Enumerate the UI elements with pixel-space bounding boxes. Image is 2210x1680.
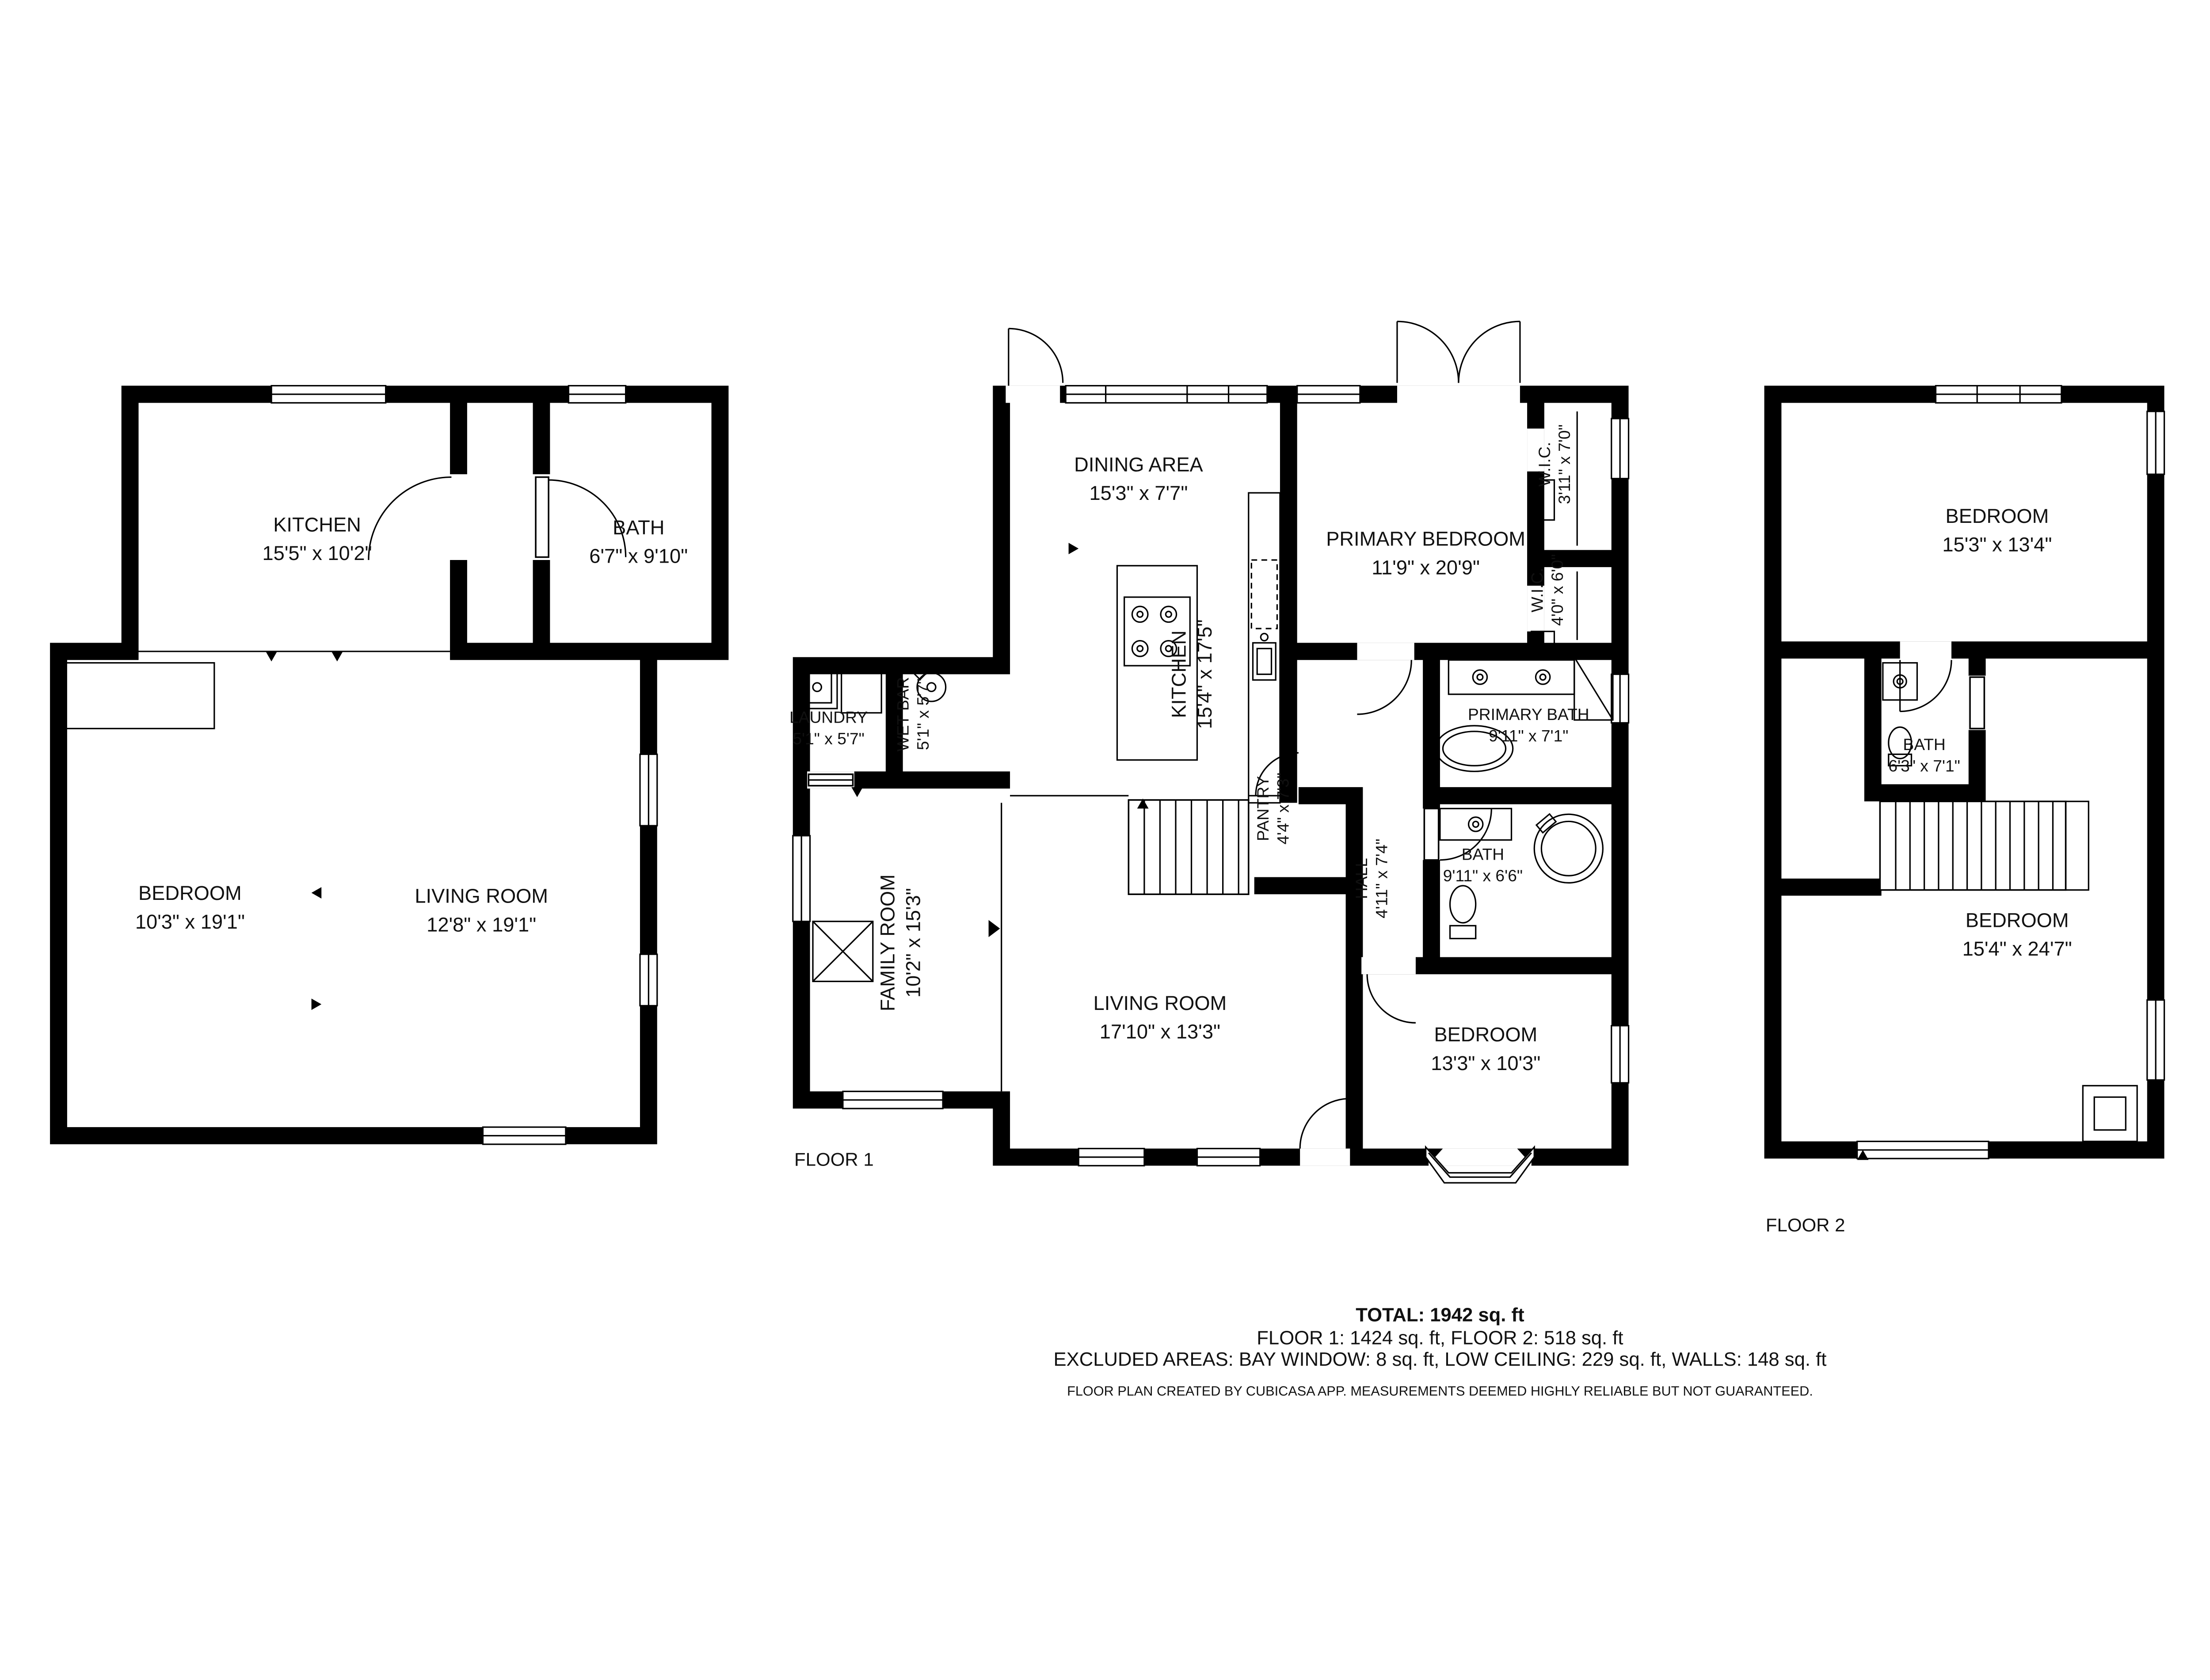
floor2-label: FLOOR 2 <box>1766 1215 1845 1235</box>
room-label-bedroom-upper: BEDROOM 15'3" x 13'4" <box>1942 505 2052 556</box>
floor1-label: FLOOR 1 <box>794 1149 874 1170</box>
summary-floors: FLOOR 1: 1424 sq. ft, FLOOR 2: 518 sq. f… <box>1257 1327 1623 1349</box>
floor1-walls <box>793 386 1629 1166</box>
room-label-family-room: FAMILY ROOM 10'2" x 15'3" <box>876 874 924 1011</box>
room-name: BATH <box>613 516 664 539</box>
room-name: KITCHEN <box>273 513 361 536</box>
room-label-pantry: PANTRY 4'4" x 7'3" <box>1254 773 1292 844</box>
room-label-kitchen-floor1: KITCHEN 15'4" x 17'5" <box>1168 619 1216 729</box>
room-name: BEDROOM <box>1434 1023 1537 1046</box>
room-dims: 11'9" x 20'9" <box>1372 556 1480 579</box>
kitchen-counter <box>1249 493 1280 803</box>
floorplan-image: KITCHEN 15'5" x 10'2" BATH 6'7" x 9'10" … <box>0 0 2210 1398</box>
room-name: PRIMARY BEDROOM <box>1326 528 1525 550</box>
room-dims: 12'8" x 19'1" <box>427 913 536 936</box>
room-name: WET BAR <box>894 677 912 752</box>
room-name: BATH <box>1903 735 1945 754</box>
toilet-floor1 <box>1450 886 1476 939</box>
room-label-lower-living-room: LIVING ROOM 12'8" x 19'1" <box>415 885 548 936</box>
room-dims: 15'5" x 10'2" <box>262 542 372 564</box>
room-dims: 5'1" x 5'7" <box>793 729 864 748</box>
room-name: LIVING ROOM <box>1094 992 1227 1014</box>
stairs-floor1 <box>1128 800 1248 894</box>
room-dims: 15'4" x 24'7" <box>1962 937 2072 960</box>
lower-closet <box>54 663 214 729</box>
room-label-bath-floor1: BATH 9'11" x 6'6" <box>1443 845 1523 885</box>
room-dims: 15'3" x 7'7" <box>1089 482 1188 504</box>
room-dims: 4'0" x 6'0" <box>1548 554 1566 626</box>
plan-floor-1: DINING AREA 15'3" x 7'7" PRIMARY BEDROOM… <box>789 321 1628 1183</box>
summary-excluded: EXCLUDED AREAS: BAY WINDOW: 8 sq. ft, LO… <box>1054 1349 1827 1370</box>
room-name: BEDROOM <box>138 882 242 904</box>
room-dims: 10'2" x 15'3" <box>902 888 924 998</box>
plan-lower-level: KITCHEN 15'5" x 10'2" BATH 6'7" x 9'10" … <box>50 386 728 1144</box>
room-label-lower-bedroom: BEDROOM 10'3" x 19'1" <box>135 882 245 933</box>
room-name: BATH <box>1462 845 1504 864</box>
room-label-dining-area: DINING AREA 15'3" x 7'7" <box>1074 453 1203 505</box>
bath-vanity <box>1440 808 1512 840</box>
primary-bath-vanity <box>1448 660 1574 694</box>
family-room-fireplace <box>813 922 873 982</box>
room-label-bedroom-lower: BEDROOM 15'4" x 24'7" <box>1962 909 2072 960</box>
room-name: LIVING ROOM <box>415 885 548 907</box>
room-name: FAMILY ROOM <box>876 874 899 1011</box>
room-name: PRIMARY BATH <box>1468 705 1589 724</box>
stairs-floor2 <box>1880 801 2088 890</box>
room-name: KITCHEN <box>1168 630 1190 718</box>
room-label-wet-bar: WET BAR 5'1" x 5'7" <box>894 677 932 752</box>
floorplan-page: KITCHEN 15'5" x 10'2" BATH 6'7" x 9'10" … <box>0 0 2210 1398</box>
lower-walls <box>50 386 728 1144</box>
summary-block: TOTAL: 1942 sq. ft FLOOR 1: 1424 sq. ft,… <box>1054 1305 1827 1399</box>
room-dims: 10'3" x 19'1" <box>135 910 245 933</box>
room-label-primary-bath: PRIMARY BATH 9'11" x 7'1" <box>1468 705 1589 745</box>
room-dims: 13'3" x 10'3" <box>1431 1052 1540 1074</box>
room-name: PANTRY <box>1254 776 1272 841</box>
room-name: BEDROOM <box>1946 505 2049 527</box>
room-dims: 9'11" x 6'6" <box>1443 866 1523 885</box>
fireplace-floor2 <box>2083 1086 2137 1141</box>
room-name: BEDROOM <box>1966 909 2069 932</box>
room-label-bedroom-floor1: BEDROOM 13'3" x 10'3" <box>1431 1023 1540 1074</box>
room-dims: 15'3" x 13'4" <box>1942 533 2052 556</box>
summary-total: TOTAL: 1942 sq. ft <box>1356 1305 1524 1326</box>
lower-doors <box>369 477 626 560</box>
room-dims: 6'7" x 9'10" <box>589 545 688 567</box>
direction-arrows <box>266 543 1947 1160</box>
room-name: DINING AREA <box>1074 453 1203 476</box>
room-label-primary-bedroom: PRIMARY BEDROOM 11'9" x 20'9" <box>1326 528 1525 579</box>
room-dims: 15'4" x 17'5" <box>1193 619 1216 729</box>
room-name: W.I.C. <box>1528 568 1547 612</box>
room-name: W.I.C. <box>1535 442 1554 487</box>
plan-floor-2: BEDROOM 15'3" x 13'4" BATH 6'3" x 7'1" B… <box>1764 386 2164 1159</box>
room-dims: 3'11" x 7'0" <box>1555 424 1574 504</box>
room-dims: 6'3" x 7'1" <box>1888 756 1960 775</box>
room-dims: 5'1" x 5'7" <box>914 678 932 750</box>
room-name: HALL <box>1352 858 1371 899</box>
room-name: LAUNDRY <box>789 708 868 726</box>
room-dims: 4'11" x 7'4" <box>1372 839 1391 918</box>
room-label-living-room-floor1: LIVING ROOM 17'10" x 13'3" <box>1094 992 1227 1043</box>
room-label-lower-bath: BATH 6'7" x 9'10" <box>589 516 688 568</box>
room-dims: 9'11" x 7'1" <box>1489 726 1568 745</box>
jacuzzi-tub <box>1534 814 1603 883</box>
room-dims: 17'10" x 13'3" <box>1100 1021 1220 1043</box>
room-label-lower-kitchen: KITCHEN 15'5" x 10'2" <box>262 513 372 564</box>
floor2-walls <box>1764 386 2164 1159</box>
summary-disclaimer: FLOOR PLAN CREATED BY CUBICASA APP. MEAS… <box>1067 1383 1813 1398</box>
room-dims: 4'4" x 7'3" <box>1273 773 1292 844</box>
